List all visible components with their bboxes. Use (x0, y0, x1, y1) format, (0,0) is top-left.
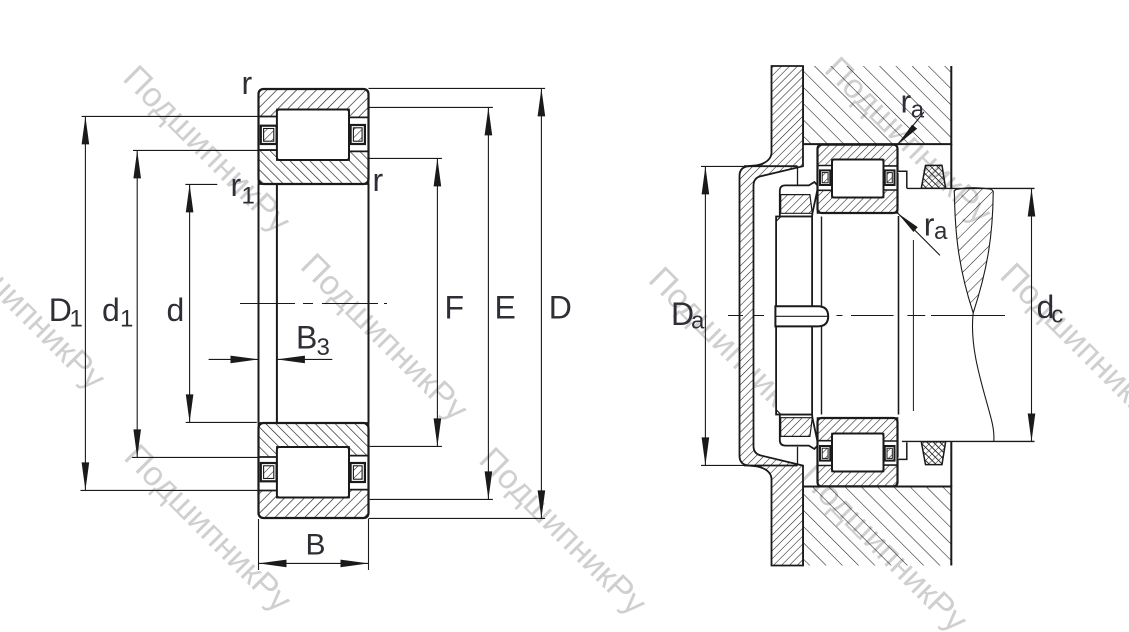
svg-text:D: D (49, 292, 72, 328)
svg-text:E: E (495, 290, 516, 326)
svg-text:B: B (296, 320, 317, 356)
svg-text:D: D (549, 290, 572, 326)
svg-text:a: a (911, 97, 925, 124)
svg-text:1: 1 (70, 306, 83, 333)
svg-text:d: d (102, 292, 120, 328)
svg-text:B: B (306, 529, 326, 562)
svg-text:3: 3 (317, 334, 330, 361)
svg-text:c: c (1051, 302, 1063, 329)
svg-text:r: r (373, 162, 384, 198)
svg-text:a: a (934, 218, 948, 245)
svg-text:d: d (167, 292, 185, 328)
svg-text:1: 1 (242, 183, 255, 210)
svg-text:F: F (445, 290, 465, 326)
svg-text:a: a (691, 308, 705, 335)
svg-text:r: r (231, 167, 242, 203)
svg-text:r: r (242, 65, 253, 101)
svg-text:1: 1 (120, 306, 133, 333)
